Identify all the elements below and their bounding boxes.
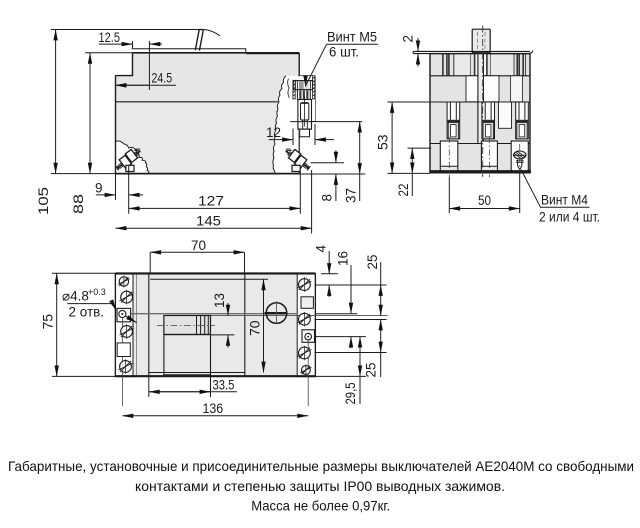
svg-text:105: 105 <box>35 187 51 215</box>
svg-text:2 отв.: 2 отв. <box>69 305 105 320</box>
svg-text:Винт М4: Винт М4 <box>541 193 588 208</box>
svg-text:37: 37 <box>344 188 359 203</box>
svg-text:75: 75 <box>40 314 56 330</box>
svg-text:25: 25 <box>365 254 380 269</box>
svg-text:24.5: 24.5 <box>152 71 173 86</box>
svg-text:16: 16 <box>336 251 351 266</box>
svg-text:22: 22 <box>396 184 411 197</box>
svg-text:Винт М5: Винт М5 <box>327 30 377 45</box>
svg-text:12.5: 12.5 <box>99 30 121 45</box>
svg-text:145: 145 <box>196 214 221 229</box>
svg-text:25: 25 <box>364 362 379 377</box>
svg-text:9: 9 <box>95 181 103 196</box>
svg-text:13: 13 <box>212 293 227 308</box>
svg-text:2 или 4 шт.: 2 или 4 шт. <box>539 210 600 225</box>
svg-text:70: 70 <box>247 320 263 336</box>
svg-text:Масса не более 0,97кг.: Масса не более 0,97кг. <box>251 498 390 514</box>
svg-text:4: 4 <box>314 245 329 253</box>
svg-text:12: 12 <box>266 125 281 140</box>
svg-text:127: 127 <box>198 194 224 209</box>
svg-text:33.5: 33.5 <box>213 378 235 393</box>
svg-text:50: 50 <box>478 193 491 208</box>
svg-text:⌀4.8: ⌀4.8 <box>62 289 89 304</box>
svg-text:2: 2 <box>401 35 416 43</box>
svg-text:6 шт.: 6 шт. <box>329 45 359 60</box>
svg-text:53: 53 <box>375 134 391 150</box>
svg-text:8: 8 <box>320 194 335 202</box>
svg-text:29,5: 29,5 <box>343 383 358 405</box>
svg-text:+0.3: +0.3 <box>88 287 106 297</box>
svg-text:контактами и степенью защиты I: контактами и степенью защиты IP00 выводн… <box>135 478 505 494</box>
svg-text:Габаритные, установочные и при: Габаритные, установочные и присоединител… <box>8 458 634 474</box>
svg-text:88: 88 <box>70 194 86 214</box>
svg-text:136: 136 <box>203 401 224 416</box>
svg-text:70: 70 <box>191 238 206 253</box>
